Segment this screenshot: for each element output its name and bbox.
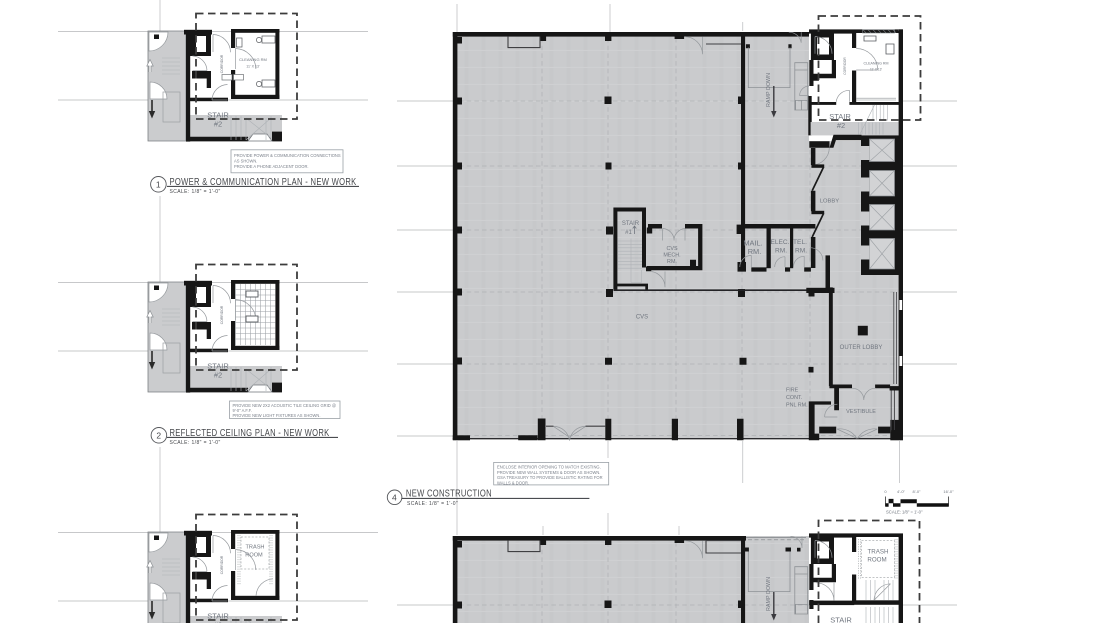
svg-text:ELEC.: ELEC. [770,239,789,246]
svg-text:CLEANING RM: CLEANING RM [864,62,889,66]
svg-text:SCALE: 1/8" = 1'-0": SCALE: 1/8" = 1'-0" [170,440,221,446]
svg-text:NEW CONSTRUCTION: NEW CONSTRUCTION [406,488,492,499]
svg-text:RM.: RM. [667,259,677,265]
svg-text:11' X 13': 11' X 13' [246,65,260,69]
svg-text:STAIR: STAIR [830,616,852,623]
svg-text:ROOM: ROOM [867,557,886,564]
svg-text:PROVIDE A PHONE ADJACENT DOOR.: PROVIDE A PHONE ADJACENT DOOR. [234,164,309,169]
svg-text:RM.: RM. [795,248,807,255]
svg-text:#2: #2 [214,120,222,129]
svg-text:PROVIDE POWER & COMMUNICATION: PROVIDE POWER & COMMUNICATION CONNECTION… [234,153,341,158]
svg-text:TEL.: TEL. [793,239,807,246]
svg-text:CVS: CVS [636,315,648,321]
svg-text:RAMP DOWN: RAMP DOWN [766,577,772,611]
svg-text:CONT.: CONT. [786,395,802,401]
svg-text:1: 1 [156,179,161,189]
svg-text:4'-0": 4'-0" [897,489,906,494]
svg-text:AS SHOWN.: AS SHOWN. [234,159,257,164]
svg-text:SCALE: 1/8" = 1'-0": SCALE: 1/8" = 1'-0" [407,501,458,507]
svg-text:RM.: RM. [775,248,787,255]
svg-text:#1: #1 [625,230,632,236]
svg-text:4: 4 [392,492,397,502]
svg-text:FIRE: FIRE [786,388,799,394]
svg-text:CORRIDOR: CORRIDOR [220,305,224,324]
svg-text:STAIR: STAIR [622,221,640,227]
svg-text:CORRIDOR: CORRIDOR [220,54,224,73]
svg-text:SCALE: 1/8" = 1'-0": SCALE: 1/8" = 1'-0" [170,189,221,195]
svg-text:OUTER LOBBY: OUTER LOBBY [840,345,883,351]
svg-text:RM.: RM. [748,247,762,256]
svg-text:11' X 13': 11' X 13' [870,68,882,72]
svg-text:CORRIDOR: CORRIDOR [843,57,847,75]
svg-text:PROVIDE NEW LIGHT FIXTURES AS: PROVIDE NEW LIGHT FIXTURES AS SHOWN. [233,413,321,418]
svg-text:ROOM: ROOM [245,553,263,559]
svg-text:VESTIBULE: VESTIBULE [846,409,876,415]
svg-text:SCALE: 1/8" = 1'-0": SCALE: 1/8" = 1'-0" [886,510,923,515]
svg-text:#2: #2 [214,371,222,380]
svg-text:#2: #2 [837,121,845,130]
svg-text:WALLS & DOOR.: WALLS & DOOR. [497,480,529,485]
svg-text:MECH.: MECH. [663,253,680,259]
svg-text:LOBBY: LOBBY [820,199,839,205]
svg-text:CLEANING RM: CLEANING RM [239,57,267,62]
svg-text:TRASH: TRASH [246,545,265,551]
svg-text:8'-0": 8'-0" [913,489,922,494]
svg-text:16'-0": 16'-0" [943,489,954,494]
svg-text:ENCLOSE INTERIOR OPENING TO MA: ENCLOSE INTERIOR OPENING TO MATCH EXISTI… [497,465,601,470]
svg-text:PROVIDE NEW WALL SYSTEMS & DOO: PROVIDE NEW WALL SYSTEMS & DOOR AS SHOWN… [497,470,600,475]
svg-text:TRASH: TRASH [868,549,889,556]
svg-text:RAMP DOWN: RAMP DOWN [766,73,772,107]
svg-text:CVS: CVS [666,246,677,252]
svg-text:2: 2 [156,430,161,440]
svg-text:PNL RM.: PNL RM. [786,403,808,409]
svg-text:GSA TREASURY TO PROVIDE BALLIS: GSA TREASURY TO PROVIDE BALLISTIC RATING… [497,475,603,480]
svg-text:CORRIDOR: CORRIDOR [220,555,224,574]
